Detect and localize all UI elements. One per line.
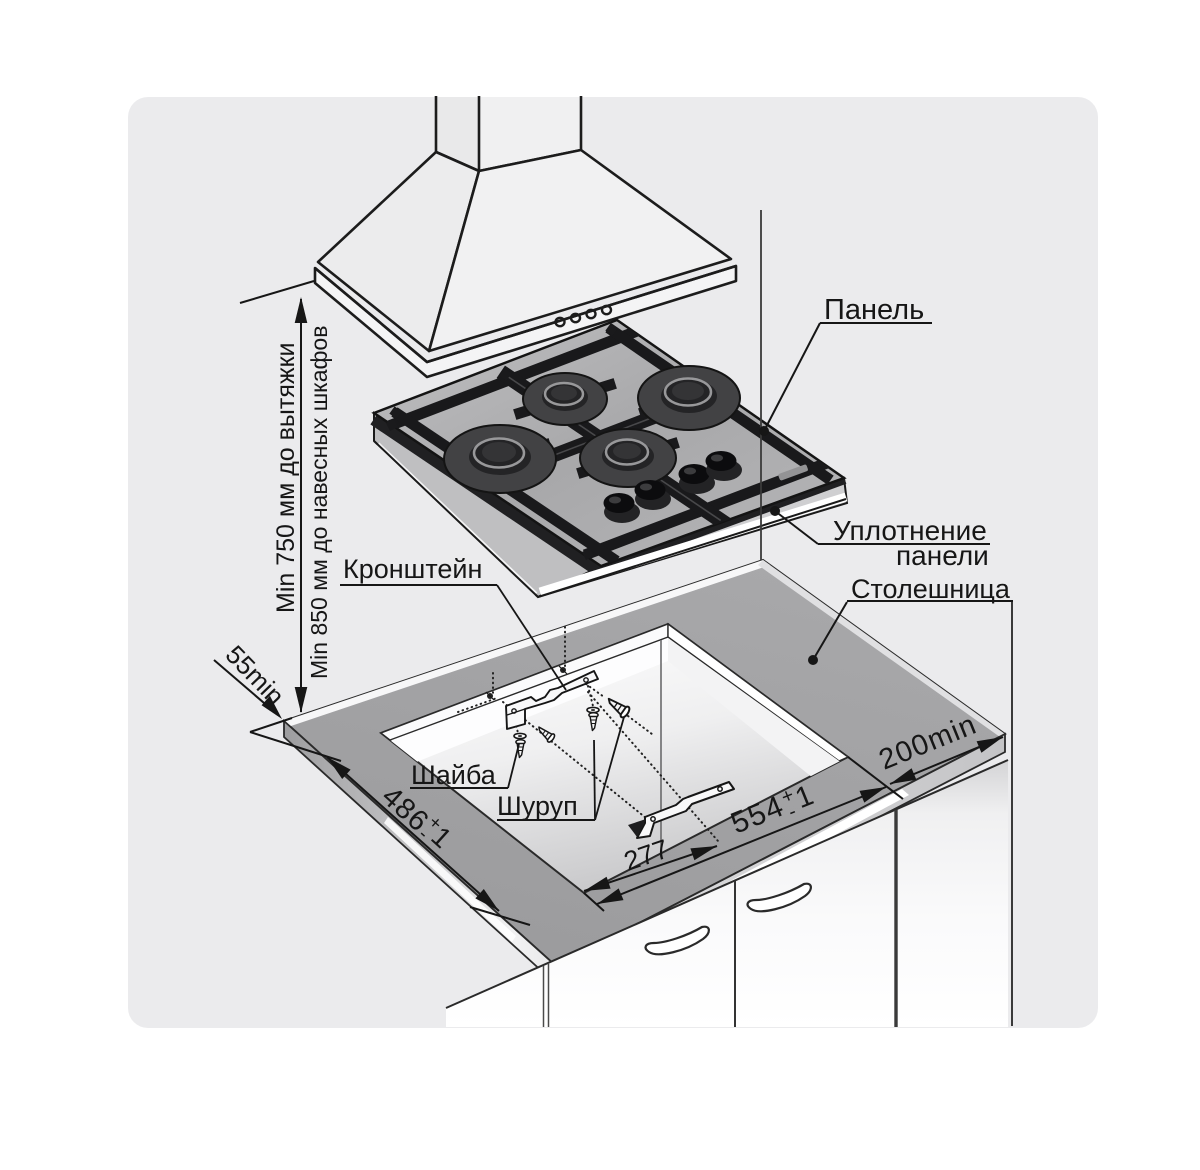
svg-text:Шайба: Шайба xyxy=(411,760,497,790)
svg-text:Кронштейн: Кронштейн xyxy=(343,554,482,584)
svg-text:Панель: Панель xyxy=(824,294,924,326)
svg-text:Столешница: Столешница xyxy=(851,574,1011,604)
svg-text:Min 850 мм до навесных шкафов: Min 850 мм до навесных шкафов xyxy=(306,326,332,679)
svg-text:Шуруп: Шуруп xyxy=(497,791,578,821)
svg-text:Min 750 мм до вытяжки: Min 750 мм до вытяжки xyxy=(272,342,300,613)
